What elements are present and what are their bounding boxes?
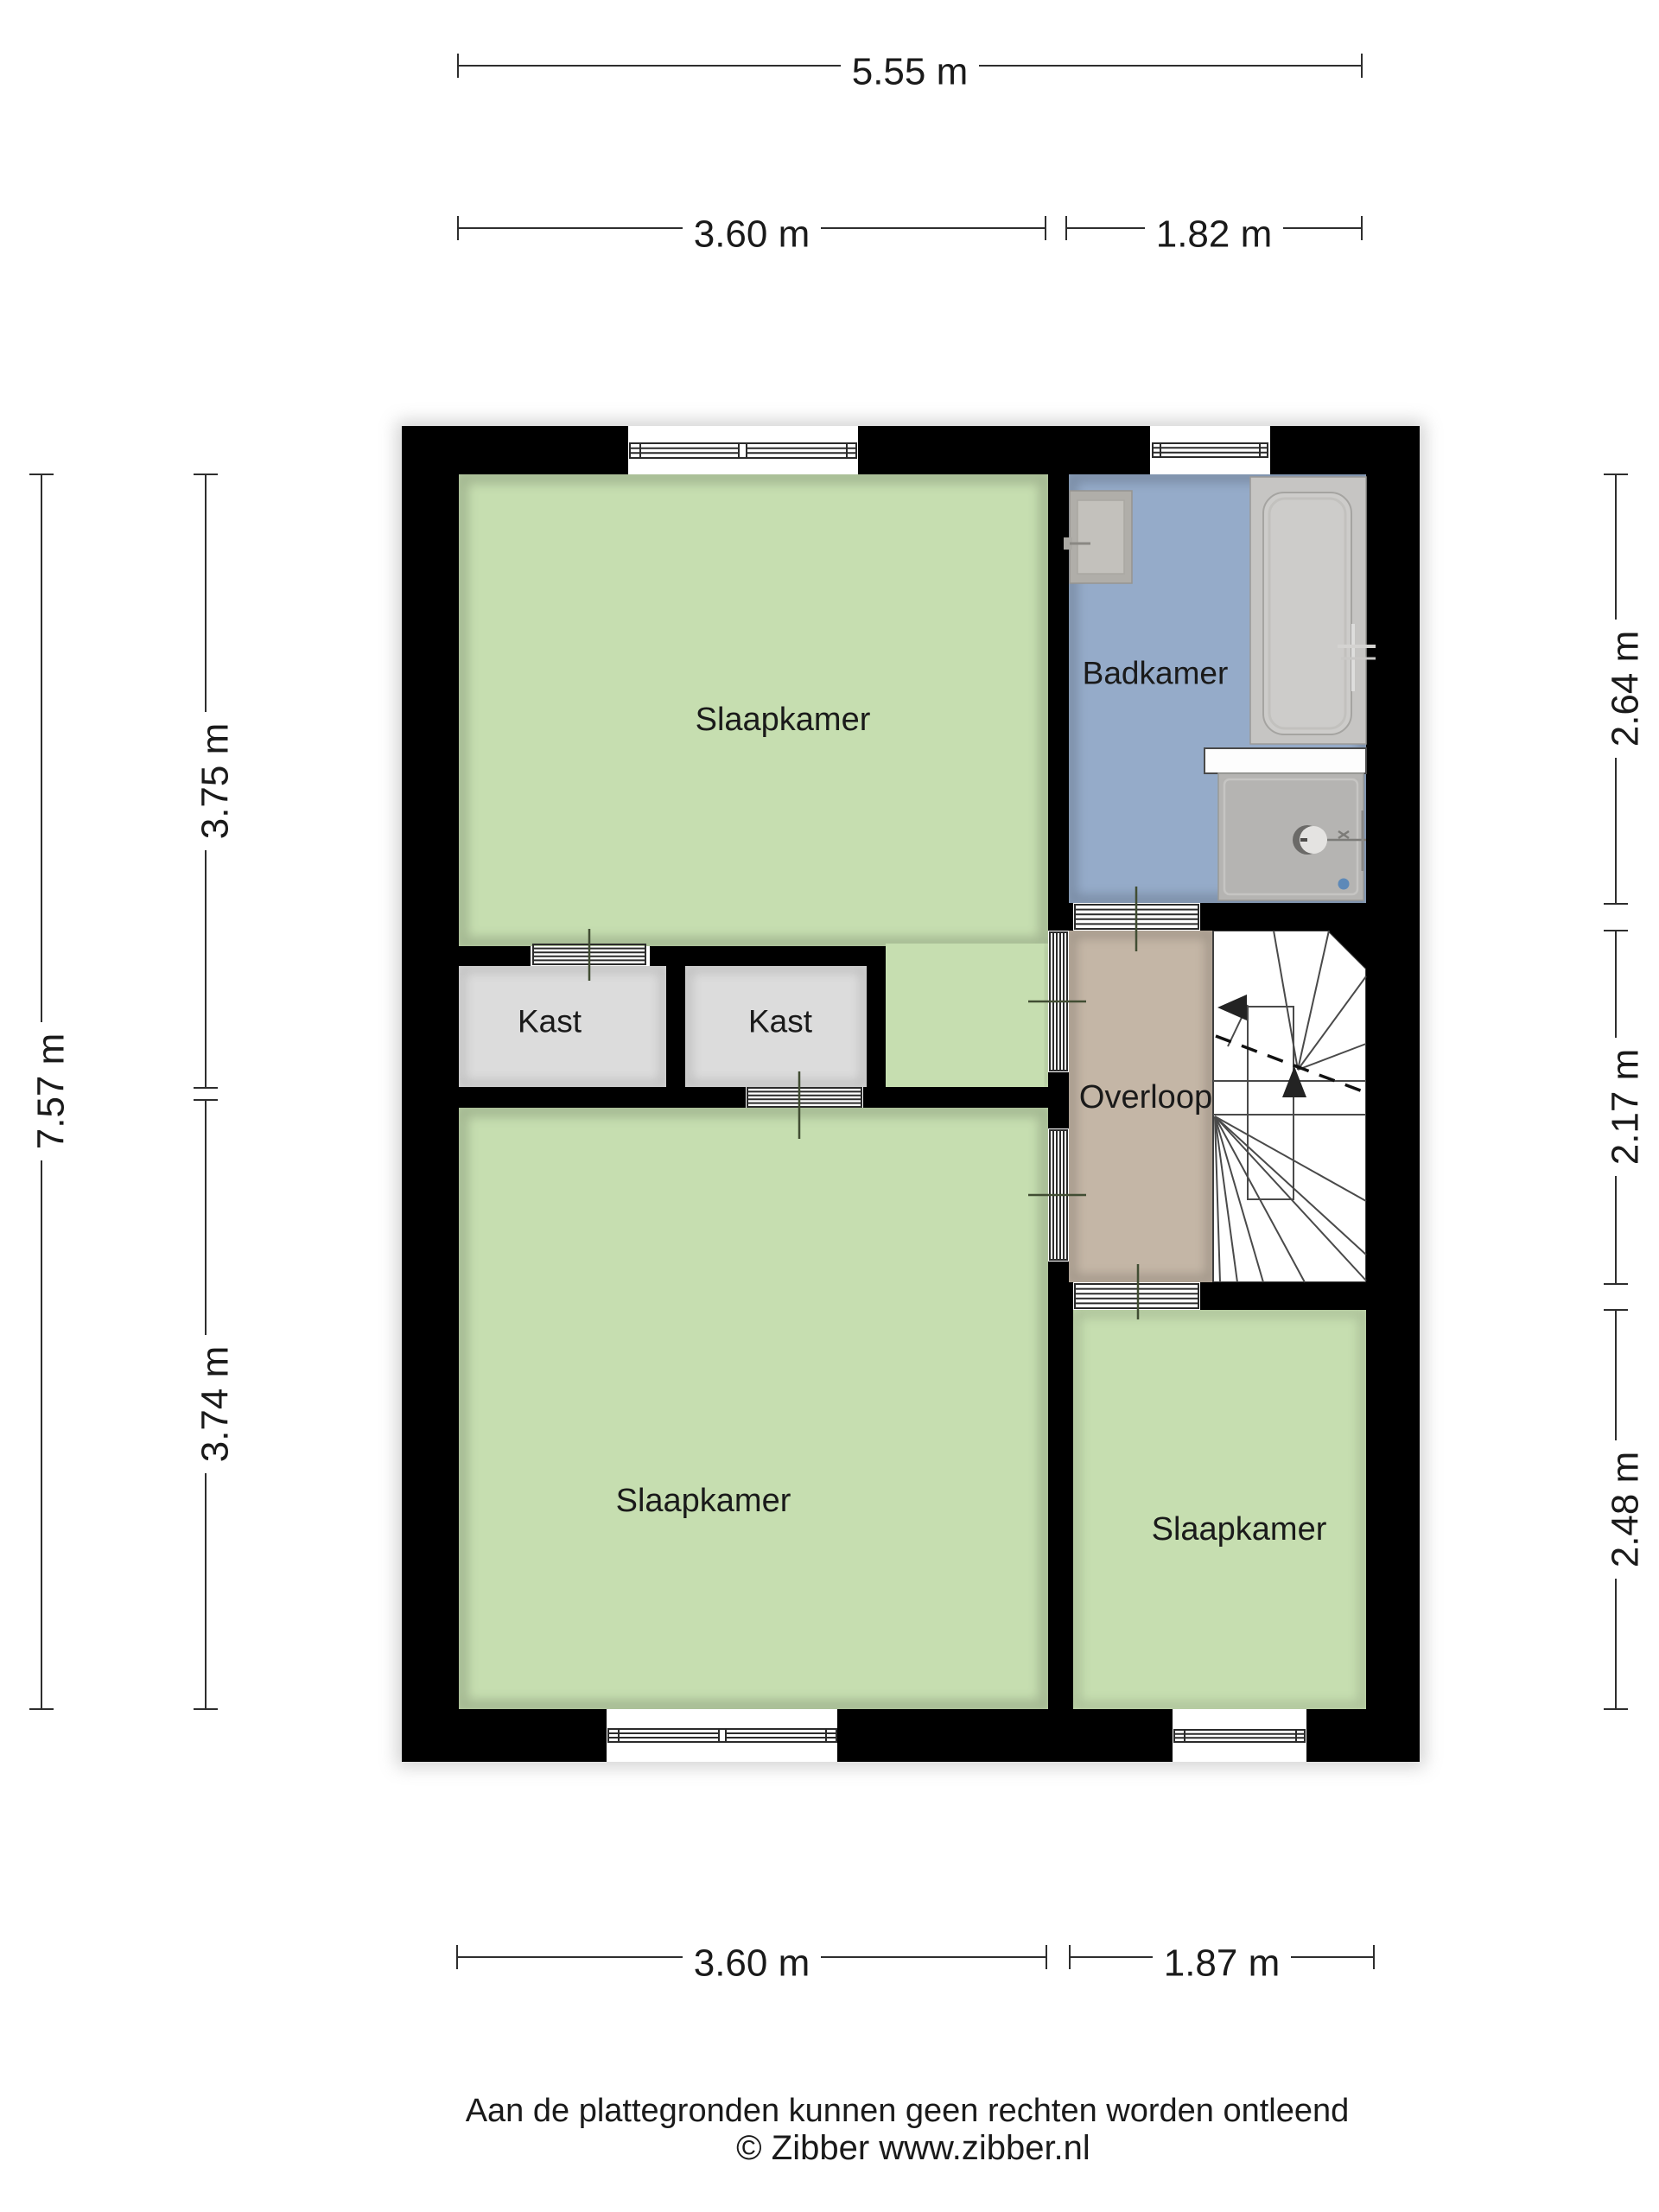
svg-text:3.60 m: 3.60 m	[694, 1942, 810, 1985]
svg-text:© Zibber www.zibber.nl: © Zibber www.zibber.nl	[736, 2129, 1090, 2167]
svg-text:2.17 m: 2.17 m	[1605, 1049, 1647, 1166]
svg-text:2.64 m: 2.64 m	[1605, 631, 1647, 747]
svg-text:Aan de plattegronden kunnen ge: Aan de plattegronden kunnen geen rechten…	[466, 2093, 1350, 2129]
svg-text:3.74 m: 3.74 m	[194, 1346, 237, 1463]
svg-text:3.75 m: 3.75 m	[194, 723, 237, 840]
svg-text:Kast: Kast	[518, 1004, 582, 1039]
svg-text:Overloop: Overloop	[1079, 1079, 1212, 1116]
svg-text:Slaapkamer: Slaapkamer	[696, 702, 871, 738]
svg-text:7.57 m: 7.57 m	[30, 1033, 73, 1150]
svg-text:3.60 m: 3.60 m	[694, 213, 810, 256]
svg-text:Kast: Kast	[748, 1004, 813, 1039]
svg-text:1.87 m: 1.87 m	[1164, 1942, 1281, 1985]
svg-text:Slaapkamer: Slaapkamer	[616, 1483, 791, 1519]
svg-text:2.48 m: 2.48 m	[1605, 1452, 1647, 1568]
svg-text:5.55 m: 5.55 m	[852, 51, 969, 93]
svg-text:1.82 m: 1.82 m	[1156, 213, 1273, 256]
svg-text:Slaapkamer: Slaapkamer	[1152, 1511, 1327, 1548]
svg-text:Badkamer: Badkamer	[1083, 656, 1229, 691]
